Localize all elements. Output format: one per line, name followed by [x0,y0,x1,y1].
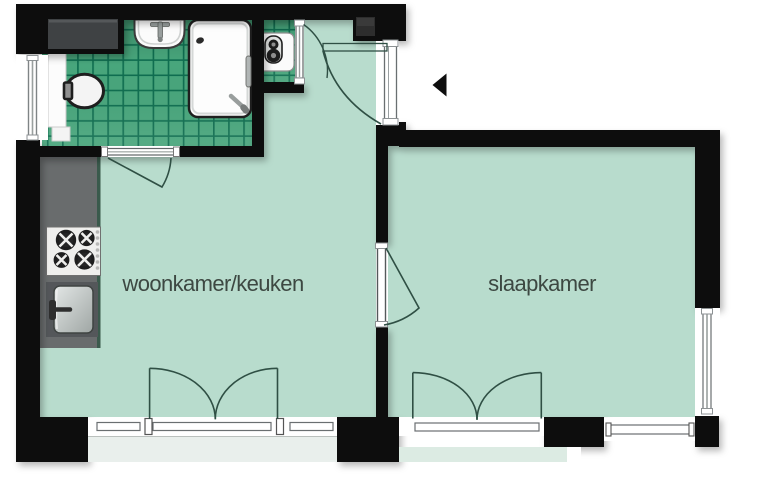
svg-text:slaapkamer: slaapkamer [488,271,596,296]
svg-text:woonkamer/keuken: woonkamer/keuken [121,271,303,296]
